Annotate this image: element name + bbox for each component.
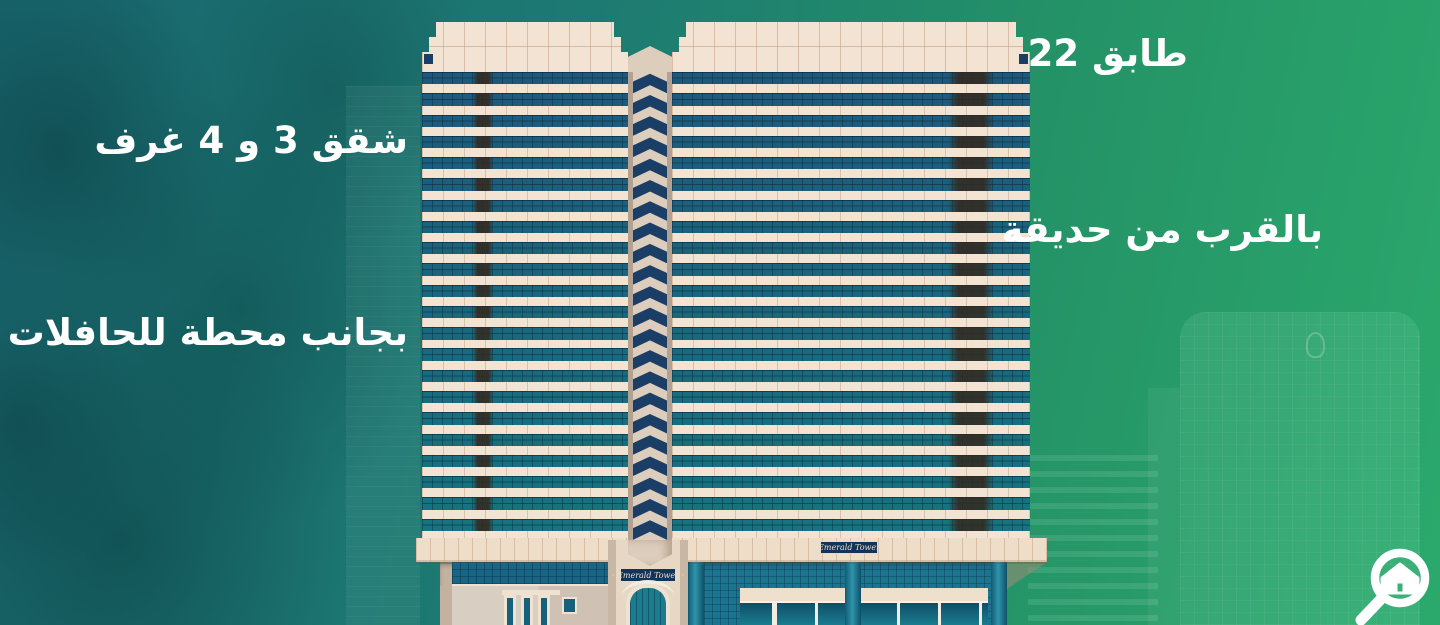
- floor-slab: [672, 148, 1030, 157]
- parapet: [672, 22, 1030, 72]
- floor: [672, 242, 1030, 263]
- floor: [672, 455, 1030, 476]
- window-dark-stripe: [948, 263, 994, 275]
- window-dark-stripe: [473, 476, 493, 488]
- floor-slab: [422, 297, 628, 306]
- floor-slab: [672, 425, 1030, 434]
- floor-window-band: [422, 178, 628, 190]
- floor-window-band: [672, 263, 1030, 275]
- floor-slab: [672, 191, 1030, 200]
- floor-slab: [422, 510, 628, 519]
- label-floor-count: 22 طابق: [1028, 33, 1188, 76]
- floor-window-band: [422, 285, 628, 297]
- storefront-sign-band: [740, 588, 988, 603]
- floor: [672, 434, 1030, 455]
- chevron-cell: [628, 519, 672, 540]
- label-near-park: بالقرب من حديقة: [1002, 209, 1323, 252]
- chevron-stack: [628, 72, 672, 540]
- floor-slab: [422, 169, 628, 178]
- window-dark-stripe: [948, 348, 994, 360]
- floor: [422, 327, 628, 348]
- floor: [672, 136, 1030, 157]
- floor-slab: [422, 403, 628, 412]
- floor-slab: [422, 467, 628, 476]
- window-dark-stripe: [948, 327, 994, 339]
- floor-window-band: [672, 72, 1030, 84]
- floor-window-band: [672, 200, 1030, 212]
- floor-slab: [422, 212, 628, 221]
- ground-floor-left: [440, 562, 610, 625]
- floor: [672, 263, 1030, 284]
- floor-slab: [422, 361, 628, 370]
- window-dark-stripe: [473, 434, 493, 446]
- floor-window-band: [422, 348, 628, 360]
- floor-slab: [422, 233, 628, 242]
- chevron-icon: [633, 178, 667, 199]
- window-dark-stripe: [948, 519, 994, 531]
- window-dark-stripe: [473, 136, 493, 148]
- floor: [422, 434, 628, 455]
- chevron-icon: [633, 519, 667, 540]
- floor-window-band: [422, 115, 628, 127]
- chevron-cell: [628, 348, 672, 369]
- chevron-icon: [633, 136, 667, 157]
- floor-window-band: [672, 136, 1030, 148]
- floor: [672, 476, 1030, 497]
- window-dark-stripe: [948, 412, 994, 424]
- floor-slab: [672, 488, 1030, 497]
- floor-window-band: [422, 519, 628, 531]
- floor-slab: [672, 127, 1030, 136]
- column-cap: [628, 46, 672, 72]
- chevron-cell: [628, 412, 672, 433]
- floor-window-band: [672, 93, 1030, 105]
- floor-slab: [672, 340, 1030, 349]
- floor-slab: [422, 340, 628, 349]
- window-dark-stripe: [473, 455, 493, 467]
- left-wing: [422, 22, 628, 540]
- parapet: [422, 22, 628, 72]
- floor-slab: [422, 382, 628, 391]
- chevron-icon: [633, 455, 667, 476]
- chevron-cell: [628, 497, 672, 518]
- ground-floor-right: [688, 562, 1007, 625]
- floor: [422, 476, 628, 497]
- floor-slab: [672, 212, 1030, 221]
- window-dark-stripe: [473, 306, 493, 318]
- floor-window-band: [672, 370, 1030, 382]
- window-dark-stripe: [473, 327, 493, 339]
- chevron-cell: [628, 285, 672, 306]
- floor: [672, 93, 1030, 114]
- floor: [422, 200, 628, 221]
- floor-slab: [672, 106, 1030, 115]
- chevron-icon: [633, 412, 667, 433]
- floor-slab: [672, 403, 1030, 412]
- floor-slab: [672, 84, 1030, 93]
- window-dark-stripe: [948, 285, 994, 297]
- chevron-cell: [628, 157, 672, 178]
- window-dark-stripe: [473, 263, 493, 275]
- floors-stack: [672, 72, 1030, 540]
- floor-slab: [672, 318, 1030, 327]
- floor-window-band: [422, 221, 628, 233]
- floor-window-band: [422, 263, 628, 275]
- brand-logo[interactable]: [1348, 540, 1440, 625]
- floor: [422, 348, 628, 369]
- corner-window: [424, 54, 433, 64]
- floor-window-band: [672, 242, 1030, 254]
- central-column: [628, 46, 672, 578]
- pilaster: [845, 562, 861, 625]
- floor-slab: [672, 276, 1030, 285]
- window-dark-stripe: [473, 370, 493, 382]
- floor-window-band: [422, 242, 628, 254]
- floor-window-band: [672, 115, 1030, 127]
- floor-window-band: [672, 476, 1030, 488]
- ground-cream-wall: [440, 586, 610, 625]
- chevron-cell: [628, 306, 672, 327]
- floor-slab: [672, 382, 1030, 391]
- floor: [422, 115, 628, 136]
- floor-slab: [422, 318, 628, 327]
- chevron-icon: [633, 285, 667, 306]
- ground-teal-band: [452, 562, 610, 586]
- floor: [422, 263, 628, 284]
- floor: [672, 412, 1030, 433]
- chevron-icon: [633, 434, 667, 455]
- ground-window-group: [504, 595, 550, 625]
- floor: [672, 200, 1030, 221]
- floor-slab: [422, 191, 628, 200]
- floor-window-band: [672, 285, 1030, 297]
- chevron-icon: [633, 476, 667, 497]
- floor: [422, 306, 628, 327]
- right-wing: [672, 22, 1030, 540]
- window-dark-stripe: [948, 242, 994, 254]
- floor-slab: [672, 361, 1030, 370]
- floor-slab: [672, 254, 1030, 263]
- chevron-icon: [633, 370, 667, 391]
- floor: [422, 221, 628, 242]
- chevron-cell: [628, 221, 672, 242]
- floor-window-band: [672, 306, 1030, 318]
- floor: [422, 370, 628, 391]
- floor: [672, 285, 1030, 306]
- pilaster: [991, 562, 1007, 625]
- chevron-icon: [633, 263, 667, 284]
- column-base-shield: [628, 540, 672, 566]
- floor: [422, 136, 628, 157]
- label-near-bus-station: بجانب محطة للحافلات: [8, 312, 408, 355]
- floor: [672, 391, 1030, 412]
- ground-window: [538, 595, 550, 625]
- floor-window-band: [672, 157, 1030, 169]
- floor: [422, 497, 628, 518]
- floor-window-band: [422, 497, 628, 509]
- floor-window-band: [672, 348, 1030, 360]
- floor-slab: [672, 169, 1030, 178]
- window-dark-stripe: [948, 200, 994, 212]
- floor-window-band: [422, 93, 628, 105]
- chevron-icon: [633, 242, 667, 263]
- floor: [672, 306, 1030, 327]
- chevron-icon: [633, 497, 667, 518]
- chevron-icon: [633, 221, 667, 242]
- floor: [422, 157, 628, 178]
- storefront: [740, 588, 988, 625]
- floor: [422, 391, 628, 412]
- magnifier-house-icon: [1348, 540, 1440, 625]
- window-dark-stripe: [473, 497, 493, 509]
- window-dark-stripe: [473, 285, 493, 297]
- floor-window-band: [422, 434, 628, 446]
- window-dark-stripe: [473, 519, 493, 531]
- floor-window-band: [672, 519, 1030, 531]
- window-dark-stripe: [948, 391, 994, 403]
- floor-window-band: [422, 327, 628, 339]
- window-dark-stripe: [473, 242, 493, 254]
- window-dark-stripe: [473, 115, 493, 127]
- floor-window-band: [672, 497, 1030, 509]
- floor-slab: [672, 510, 1030, 519]
- window-dark-stripe: [948, 455, 994, 467]
- floor-window-band: [672, 221, 1030, 233]
- floor-window-band: [422, 370, 628, 382]
- chevron-icon: [633, 348, 667, 369]
- floor-slab: [672, 297, 1030, 306]
- window-dark-stripe: [473, 391, 493, 403]
- ground-small-window: [562, 597, 577, 614]
- floor-slab: [422, 276, 628, 285]
- background-building-striped: [1028, 455, 1158, 625]
- window-dark-stripe: [473, 200, 493, 212]
- floor: [672, 72, 1030, 93]
- window-dark-stripe: [473, 412, 493, 424]
- floor: [672, 115, 1030, 136]
- background-building-emblem: [1306, 332, 1325, 358]
- floor-slab: [672, 446, 1030, 455]
- chevron-cell: [628, 72, 672, 93]
- infographic-stage: · Emerald Tower · Emerald Tower 22 طابق …: [0, 0, 1440, 625]
- emerald-tower-sign-right: Emerald Tower: [820, 541, 878, 554]
- floor: [422, 72, 628, 93]
- chevron-cell: [628, 178, 672, 199]
- chevron-icon: [633, 306, 667, 327]
- floor-slab: [422, 106, 628, 115]
- window-dark-stripe: [948, 497, 994, 509]
- floor-window-band: [422, 306, 628, 318]
- floors-stack: [422, 72, 628, 540]
- floor-slab: [422, 254, 628, 263]
- window-dark-stripe: [948, 115, 994, 127]
- floor: [672, 327, 1030, 348]
- chevron-cell: [628, 200, 672, 221]
- window-dark-stripe: [473, 72, 493, 84]
- floor: [422, 412, 628, 433]
- window-dark-stripe: [473, 221, 493, 233]
- pilaster: [688, 562, 704, 625]
- floor: [672, 370, 1030, 391]
- sign-text: Emerald Tower: [818, 543, 880, 552]
- label-apartment-types: شقق 3 و 4 غرف: [94, 120, 408, 163]
- window-dark-stripe: [948, 72, 994, 84]
- chevron-cell: [628, 455, 672, 476]
- window-dark-stripe: [948, 136, 994, 148]
- chevron-cell: [628, 476, 672, 497]
- window-dark-stripe: [473, 93, 493, 105]
- chevron-cell: [628, 370, 672, 391]
- floor: [422, 178, 628, 199]
- chevron-icon: [633, 72, 667, 93]
- chevron-cell: [628, 242, 672, 263]
- floor: [422, 242, 628, 263]
- window-dark-stripe: [473, 157, 493, 169]
- floor: [672, 497, 1030, 518]
- entrance-door: [626, 584, 670, 625]
- ground-window: [504, 595, 516, 625]
- floor: [672, 157, 1030, 178]
- floor-slab: [422, 488, 628, 497]
- window-dark-stripe: [948, 93, 994, 105]
- window-dark-stripe: [948, 434, 994, 446]
- background-building-left: [346, 86, 420, 625]
- floor-window-band: [422, 412, 628, 424]
- floor-window-band: [672, 327, 1030, 339]
- chevron-icon: [633, 93, 667, 114]
- chevron-icon: [633, 391, 667, 412]
- window-dark-stripe: [473, 348, 493, 360]
- floor-slab: [422, 446, 628, 455]
- floor-slab: [422, 84, 628, 93]
- chevron-cell: [628, 93, 672, 114]
- ground-window: [521, 595, 533, 625]
- floor: [422, 519, 628, 540]
- floor-window-band: [672, 178, 1030, 190]
- window-dark-stripe: [948, 306, 994, 318]
- floor: [672, 348, 1030, 369]
- chevron-cell: [628, 136, 672, 157]
- floor-window-band: [422, 455, 628, 467]
- chevron-icon: [633, 157, 667, 178]
- floor-window-band: [672, 455, 1030, 467]
- floor-window-band: [422, 476, 628, 488]
- floor-slab: [422, 148, 628, 157]
- floor-window-band: [672, 391, 1030, 403]
- chevron-cell: [628, 391, 672, 412]
- floor-window-band: [422, 200, 628, 212]
- floor: [672, 221, 1030, 242]
- window-dark-stripe: [948, 221, 994, 233]
- floor-window-band: [422, 157, 628, 169]
- chevron-icon: [633, 200, 667, 221]
- storefront-glass: [740, 603, 988, 625]
- chevron-cell: [628, 115, 672, 136]
- window-dark-stripe: [948, 157, 994, 169]
- floor: [422, 285, 628, 306]
- window-dark-stripe: [948, 370, 994, 382]
- chevron-cell: [628, 434, 672, 455]
- floor-window-band: [672, 434, 1030, 446]
- window-dark-stripe: [948, 476, 994, 488]
- floor-slab: [422, 127, 628, 136]
- window-dark-stripe: [948, 178, 994, 190]
- floor-slab: [672, 467, 1030, 476]
- floor-window-band: [422, 391, 628, 403]
- chevron-icon: [633, 327, 667, 348]
- window-dark-stripe: [473, 178, 493, 190]
- floor-slab: [422, 425, 628, 434]
- floor-window-band: [422, 72, 628, 84]
- floor: [672, 178, 1030, 199]
- chevron-cell: [628, 263, 672, 284]
- floor-window-band: [422, 136, 628, 148]
- floor-window-band: [672, 412, 1030, 424]
- floor: [422, 455, 628, 476]
- chevron-icon: [633, 115, 667, 136]
- floor: [672, 519, 1030, 540]
- chevron-cell: [628, 327, 672, 348]
- building-canopy: [416, 538, 1047, 562]
- floor: [422, 93, 628, 114]
- floor-slab: [672, 233, 1030, 242]
